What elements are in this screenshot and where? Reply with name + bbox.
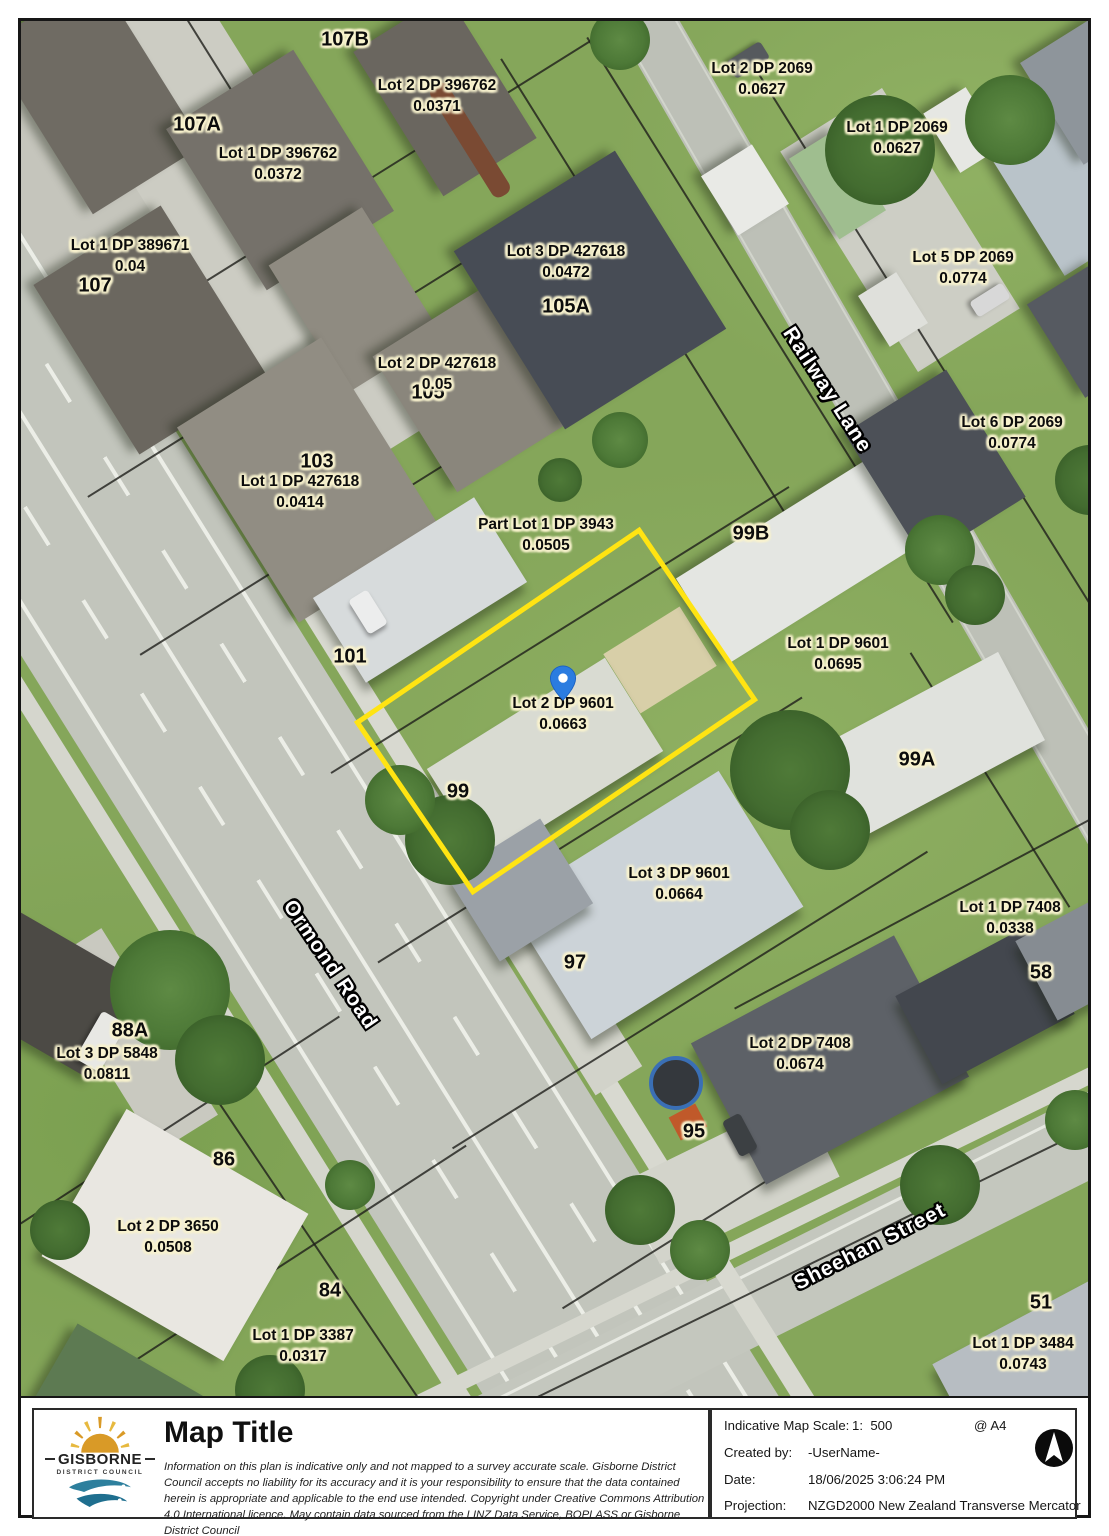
logo-koru-icon bbox=[63, 1476, 137, 1515]
lot-name: Part Lot 1 DP 3943 bbox=[478, 514, 614, 535]
building bbox=[932, 1261, 1088, 1398]
lot-label: Lot 3 DP 4276180.0472 bbox=[507, 241, 626, 283]
lot-name: Lot 1 DP 3484 bbox=[972, 1333, 1073, 1354]
trampoline bbox=[649, 1056, 703, 1110]
street-number-label: 107 bbox=[78, 275, 111, 298]
tree bbox=[175, 1015, 265, 1105]
lot-name: Lot 2 DP 2069 bbox=[711, 58, 812, 79]
street-number-label: 51 bbox=[1030, 1292, 1052, 1315]
lot-area: 0.0695 bbox=[787, 654, 888, 675]
street-number-label: 105A bbox=[542, 296, 590, 319]
logo-org-subtitle: DISTRICT COUNCIL bbox=[57, 1469, 144, 1476]
gisborne-district-council-logo: GISBORNE DISTRICT COUNCIL bbox=[44, 1415, 156, 1515]
street-number-label: 99B bbox=[733, 523, 770, 546]
lot-label: Lot 1 DP 33870.0317 bbox=[252, 1325, 353, 1367]
lot-label: Lot 2 DP 4276180.05 bbox=[378, 353, 497, 395]
tree bbox=[592, 412, 648, 468]
lot-area: 0.0674 bbox=[749, 1054, 850, 1075]
lot-name: Lot 1 DP 3387 bbox=[252, 1325, 353, 1346]
logo-sun-icon bbox=[61, 1415, 139, 1453]
lot-label: Lot 2 DP 3967620.0371 bbox=[378, 75, 497, 117]
lot-name: Lot 2 DP 7408 bbox=[749, 1033, 850, 1054]
street-number-label: 86 bbox=[213, 1149, 235, 1172]
created-by-value: -UserName- bbox=[808, 1445, 880, 1460]
street-number-label: 95 bbox=[683, 1121, 705, 1144]
logo-org-name: GISBORNE bbox=[58, 1451, 142, 1468]
lot-name: Lot 2 DP 396762 bbox=[378, 75, 497, 96]
lot-area: 0.0338 bbox=[959, 918, 1060, 939]
street-number-label: 58 bbox=[1030, 962, 1052, 985]
lot-name: Lot 1 DP 7408 bbox=[959, 897, 1060, 918]
lot-area: 0.0811 bbox=[56, 1064, 157, 1085]
lot-name: Lot 1 DP 9601 bbox=[787, 633, 888, 654]
lot-area: 0.0372 bbox=[219, 164, 338, 185]
page-size-value: @ A4 bbox=[974, 1418, 1006, 1433]
street-number-label: 107A bbox=[173, 114, 221, 137]
lot-label: Lot 1 DP 3967620.0372 bbox=[219, 143, 338, 185]
tree bbox=[945, 565, 1005, 625]
projection-label: Projection: bbox=[724, 1498, 786, 1513]
lot-name: Lot 1 DP 396762 bbox=[219, 143, 338, 164]
lot-label: Lot 2 DP 20690.0627 bbox=[711, 58, 812, 100]
projection-value: NZGD2000 New Zealand Transverse Mercator bbox=[808, 1498, 1081, 1513]
lot-area: 0.04 bbox=[71, 256, 190, 277]
lot-area: 0.0505 bbox=[478, 535, 614, 556]
lot-name: Lot 5 DP 2069 bbox=[912, 247, 1013, 268]
street-number-label: 84 bbox=[319, 1280, 341, 1303]
date-value: 18/06/2025 3:06:24 PM bbox=[808, 1472, 945, 1487]
lot-label: Lot 2 DP 36500.0508 bbox=[117, 1216, 218, 1258]
street-number-label: 99 bbox=[447, 781, 469, 804]
lot-area: 0.0627 bbox=[846, 138, 947, 159]
lot-name: Lot 1 DP 427618 bbox=[241, 471, 360, 492]
map-title: Map Title bbox=[164, 1416, 293, 1450]
lot-name: Lot 3 DP 427618 bbox=[507, 241, 626, 262]
lot-area: 0.0774 bbox=[961, 433, 1062, 454]
tree bbox=[965, 75, 1055, 165]
logo-rule bbox=[145, 1458, 155, 1460]
tree bbox=[790, 790, 870, 870]
lot-area: 0.0414 bbox=[241, 492, 360, 513]
lot-label: Lot 5 DP 20690.0774 bbox=[912, 247, 1013, 289]
lot-label: Lot 3 DP 96010.0664 bbox=[628, 863, 729, 905]
tree bbox=[670, 1220, 730, 1280]
logo-rule bbox=[45, 1458, 55, 1460]
lot-label: Lot 1 DP 4276180.0414 bbox=[241, 471, 360, 513]
tree bbox=[325, 1160, 375, 1210]
lot-name: Lot 2 DP 3650 bbox=[117, 1216, 218, 1237]
lot-label: Part Lot 1 DP 39430.0505 bbox=[478, 514, 614, 556]
lot-label: Lot 1 DP 96010.0695 bbox=[787, 633, 888, 675]
lot-label: Lot 1 DP 20690.0627 bbox=[846, 117, 947, 159]
lot-area: 0.0663 bbox=[512, 714, 613, 735]
lot-label: Lot 2 DP 74080.0674 bbox=[749, 1033, 850, 1075]
lot-name: Lot 3 DP 5848 bbox=[56, 1043, 157, 1064]
street-number-label: 97 bbox=[564, 952, 586, 975]
street-number-label: 88A bbox=[112, 1020, 149, 1043]
created-by-label: Created by: bbox=[724, 1445, 792, 1460]
tree bbox=[30, 1200, 90, 1260]
lot-area: 0.0743 bbox=[972, 1354, 1073, 1375]
scale-value: 1: 500 bbox=[852, 1418, 892, 1433]
building bbox=[1027, 262, 1088, 398]
lot-name: Lot 6 DP 2069 bbox=[961, 412, 1062, 433]
lot-area: 0.0472 bbox=[507, 262, 626, 283]
street-number-label: 101 bbox=[333, 646, 366, 669]
lot-area: 0.0627 bbox=[711, 79, 812, 100]
lot-area: 0.05 bbox=[378, 374, 497, 395]
lot-name: Lot 3 DP 9601 bbox=[628, 863, 729, 884]
tree bbox=[538, 458, 582, 502]
lot-label: Lot 1 DP 34840.0743 bbox=[972, 1333, 1073, 1375]
tree bbox=[605, 1175, 675, 1245]
footer-title-panel: GISBORNE DISTRICT COUNCIL Map Title Info… bbox=[32, 1408, 710, 1519]
lot-area: 0.0317 bbox=[252, 1346, 353, 1367]
lot-area: 0.0508 bbox=[117, 1237, 218, 1258]
street-number-label: 107B bbox=[321, 29, 369, 52]
aerial-map-canvas: Railway Lane Ormond Road Sheehan Street … bbox=[21, 21, 1088, 1398]
lot-name: Lot 1 DP 2069 bbox=[846, 117, 947, 138]
lot-area: 0.0371 bbox=[378, 96, 497, 117]
lot-label: Lot 1 DP 3896710.04 bbox=[71, 235, 190, 277]
lot-name: Lot 1 DP 389671 bbox=[71, 235, 190, 256]
tree bbox=[1055, 445, 1088, 515]
footer-metadata-panel: Indicative Map Scale: 1: 500 @ A4 Create… bbox=[710, 1408, 1077, 1519]
disclaimer-text: Information on this plan is indicative o… bbox=[164, 1459, 706, 1536]
map-pin-icon[interactable] bbox=[549, 665, 577, 701]
lot-area: 0.0664 bbox=[628, 884, 729, 905]
lot-label: Lot 3 DP 58480.0811 bbox=[56, 1043, 157, 1085]
street-number-label: 99A bbox=[899, 749, 936, 772]
map-document-page: Railway Lane Ormond Road Sheehan Street … bbox=[0, 0, 1109, 1536]
lot-label: Lot 6 DP 20690.0774 bbox=[961, 412, 1062, 454]
lot-label: Lot 1 DP 74080.0338 bbox=[959, 897, 1060, 939]
scale-label: Indicative Map Scale: bbox=[724, 1418, 849, 1433]
lot-name: Lot 2 DP 427618 bbox=[378, 353, 497, 374]
date-label: Date: bbox=[724, 1472, 756, 1487]
lot-area: 0.0774 bbox=[912, 268, 1013, 289]
north-arrow-icon bbox=[1033, 1427, 1075, 1469]
logo-name-row: GISBORNE bbox=[45, 1451, 155, 1468]
